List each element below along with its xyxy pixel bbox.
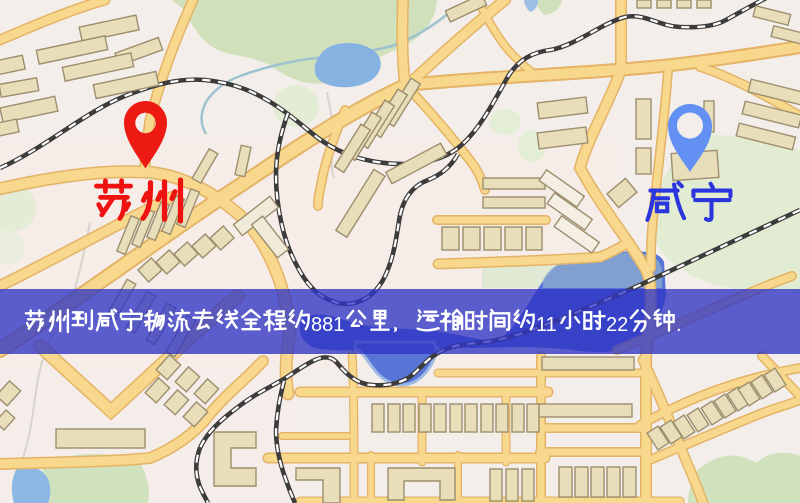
svg-text:.: . [676,314,682,336]
svg-text:22: 22 [606,314,628,336]
svg-text:881: 881 [311,314,344,336]
svg-text:11: 11 [536,314,557,336]
